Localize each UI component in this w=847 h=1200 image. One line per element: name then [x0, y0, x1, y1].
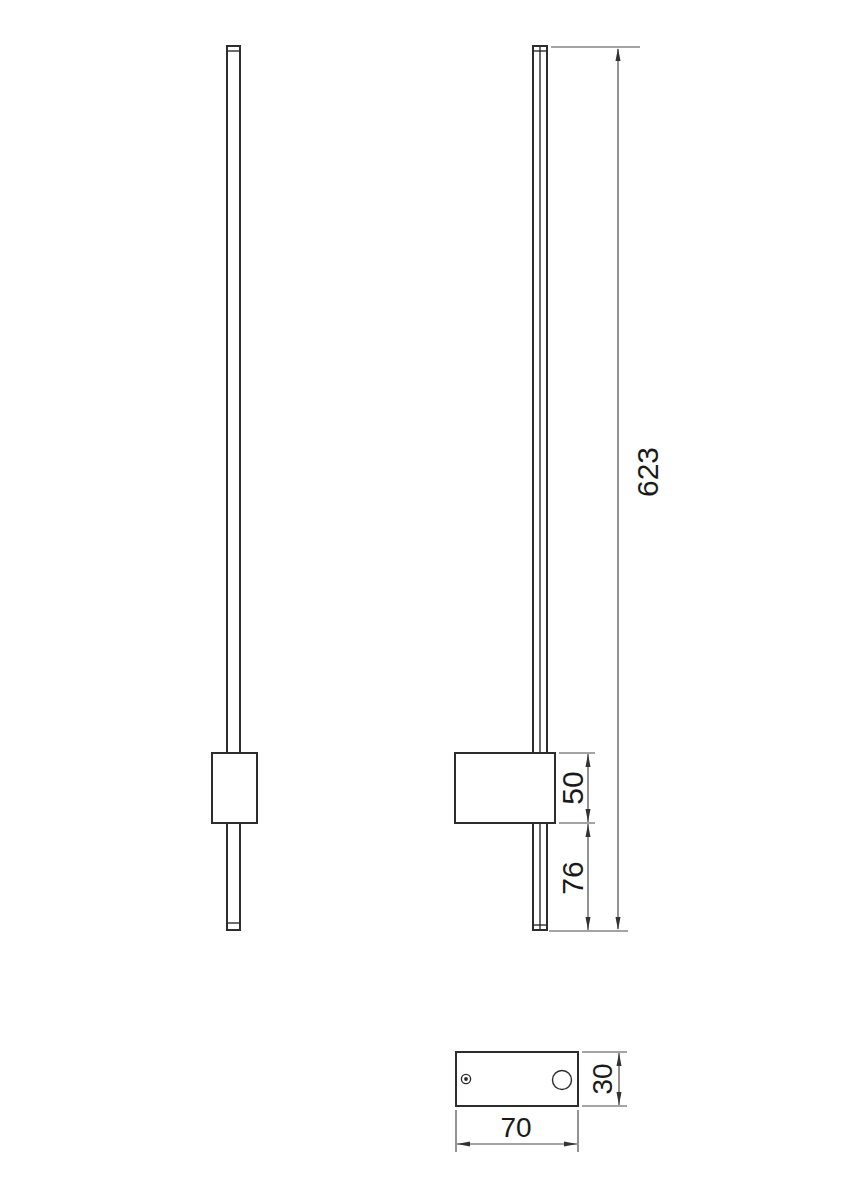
- fixing-hole-circle: [553, 1071, 572, 1090]
- arrowhead-left-icon: [457, 1142, 470, 1147]
- dim-plate-depth: 30: [582, 1052, 627, 1106]
- dim-label-below-block: 76: [556, 861, 589, 894]
- arrowhead-down-icon: [616, 917, 621, 930]
- dim-label-block-height: 50: [556, 771, 589, 804]
- dim-below-block-length: 76: [556, 824, 591, 930]
- arrowhead-down-icon: [586, 917, 591, 930]
- arrowhead-right-icon: [564, 1142, 577, 1147]
- arrowhead-up-icon: [616, 48, 621, 61]
- bottom-view: [456, 1052, 578, 1106]
- arrowhead-up-icon: [586, 754, 591, 767]
- dim-label-plate-depth: 30: [587, 1063, 618, 1094]
- dim-label-total-height: 623: [631, 447, 664, 497]
- mounting-plate: [456, 1052, 578, 1106]
- lamp-dimension-drawing: 623 50 76: [0, 0, 847, 1200]
- set-screw-center-dot: [464, 1077, 468, 1081]
- mount-block-side: [455, 753, 555, 823]
- front-view: [212, 46, 257, 930]
- side-view: [455, 46, 555, 930]
- dim-plate-width: 70: [456, 1110, 578, 1152]
- dim-block-height: 50: [556, 753, 596, 823]
- dim-label-plate-width: 70: [500, 1112, 531, 1143]
- technical-drawing-page: 623 50 76: [0, 0, 847, 1200]
- arrowhead-down-icon: [586, 809, 591, 822]
- mount-block-front: [212, 753, 257, 823]
- arrowhead-up-icon: [586, 824, 591, 837]
